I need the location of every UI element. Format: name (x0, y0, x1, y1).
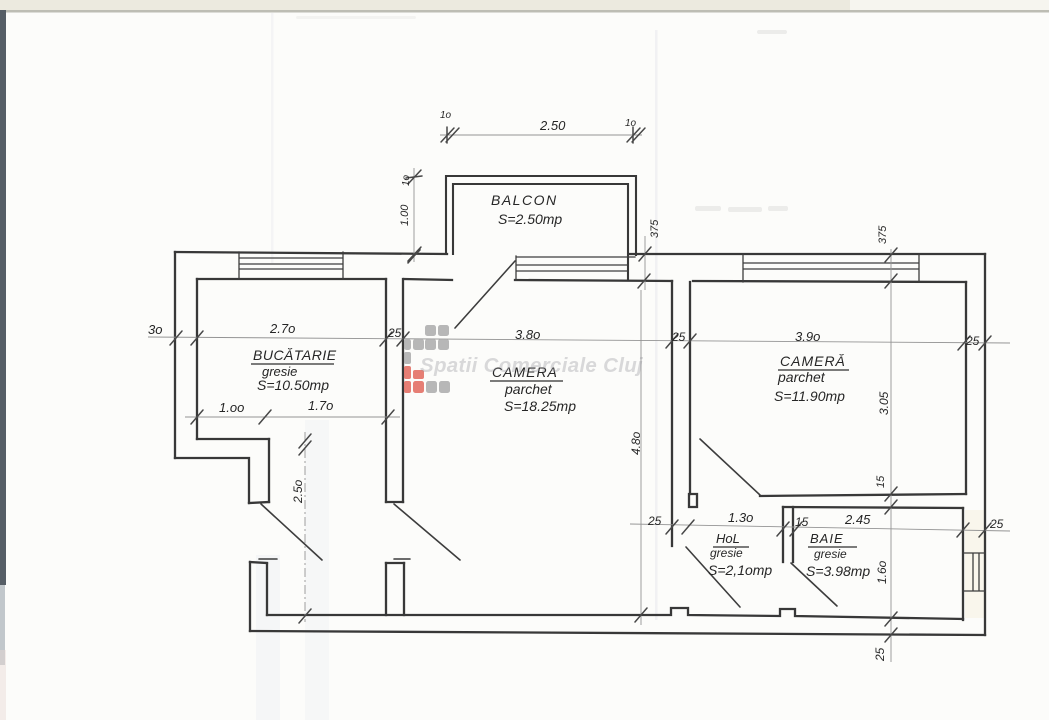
svg-text:S=10.50mp: S=10.50mp (257, 377, 329, 393)
svg-text:S=11.90mp: S=11.90mp (774, 388, 845, 404)
svg-text:25: 25 (671, 330, 686, 344)
svg-text:gresie: gresie (710, 546, 743, 560)
svg-text:15: 15 (875, 475, 887, 488)
svg-text:1.oo: 1.oo (219, 400, 244, 415)
svg-text:S=18.25mp: S=18.25mp (504, 398, 576, 414)
svg-text:3.9o: 3.9o (795, 329, 820, 344)
svg-text:BAIE: BAIE (810, 531, 844, 546)
svg-text:BALCON: BALCON (491, 192, 558, 208)
svg-text:S=2,1omp: S=2,1omp (708, 562, 772, 578)
svg-text:2.7o: 2.7o (269, 321, 295, 336)
svg-text:CAMERĂ: CAMERĂ (780, 353, 846, 369)
svg-text:gresie: gresie (814, 547, 847, 561)
svg-text:1.6o: 1.6o (875, 560, 889, 584)
svg-text:375: 375 (877, 225, 889, 244)
svg-text:Spatii Comerciale Cluj: Spatii Comerciale Cluj (420, 354, 644, 377)
svg-text:3o: 3o (148, 322, 162, 337)
svg-text:S=3.98mp: S=3.98mp (806, 563, 870, 579)
svg-text:S=2.50mp: S=2.50mp (498, 211, 562, 227)
svg-text:BUCĂTARIE: BUCĂTARIE (253, 347, 337, 363)
svg-text:parchet: parchet (777, 369, 826, 385)
svg-text:25: 25 (989, 517, 1004, 531)
svg-text:375: 375 (649, 219, 661, 238)
svg-text:4.8o: 4.8o (629, 431, 643, 455)
svg-text:25: 25 (873, 647, 887, 662)
svg-text:1.7o: 1.7o (308, 398, 333, 413)
svg-text:2.45: 2.45 (844, 512, 871, 527)
svg-text:1o: 1o (401, 174, 412, 186)
svg-text:25: 25 (647, 514, 662, 528)
svg-text:1.3o: 1.3o (728, 510, 753, 525)
svg-text:3.8o: 3.8o (515, 327, 540, 342)
svg-text:HoL: HoL (716, 531, 740, 546)
svg-text:15: 15 (795, 515, 809, 529)
svg-text:parchet: parchet (504, 381, 553, 397)
svg-text:1o: 1o (440, 110, 452, 121)
svg-text:25: 25 (387, 326, 402, 340)
svg-text:3.05: 3.05 (877, 391, 891, 415)
svg-text:25: 25 (965, 334, 980, 348)
svg-text:1o: 1o (625, 118, 637, 129)
svg-text:1.00: 1.00 (399, 204, 411, 226)
svg-text:2.50: 2.50 (539, 118, 566, 133)
svg-text:2.5o: 2.5o (291, 479, 305, 504)
